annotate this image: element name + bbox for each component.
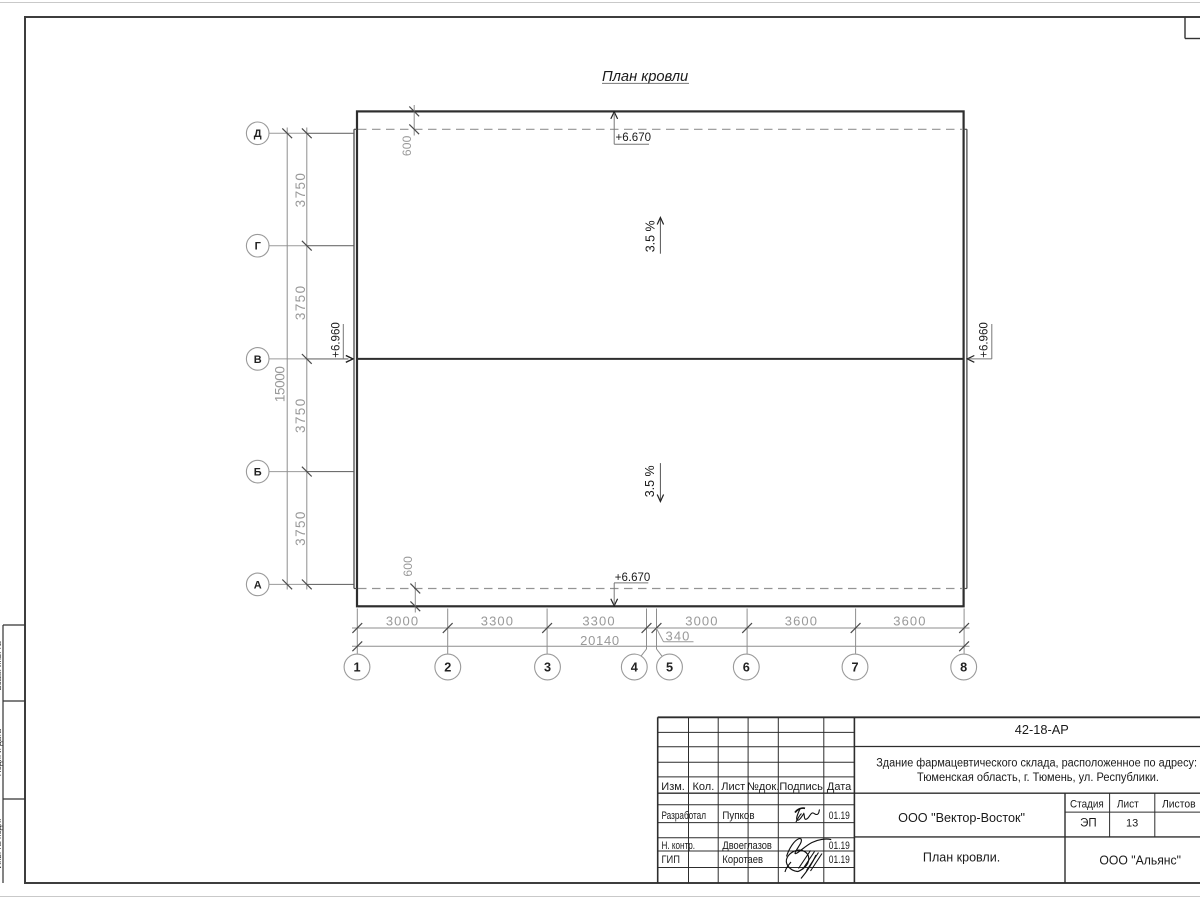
svg-text:13: 13 [1126,818,1138,830]
svg-text:Двоеглазов: Двоеглазов [722,840,772,852]
svg-text:3300: 3300 [481,614,514,629]
svg-text:ЭП: ЭП [1080,818,1097,830]
svg-text:3.5 %: 3.5 % [643,465,657,497]
svg-text:+6.670: +6.670 [615,572,651,584]
svg-text:В: В [254,354,262,366]
svg-text:Инв. № подл.: Инв. № подл. [0,819,3,869]
svg-text:7: 7 [851,660,858,674]
svg-text:Подп. и дата: Подп. и дата [0,728,3,776]
svg-text:01.19: 01.19 [829,854,850,866]
svg-text:01.19: 01.19 [829,810,850,822]
svg-text:Н. контр.: Н. контр. [662,840,696,852]
svg-text:6: 6 [743,660,750,674]
svg-text:3600: 3600 [893,614,926,629]
svg-text:Дата: Дата [827,781,852,793]
svg-text:4: 4 [631,660,638,674]
svg-text:Изм.: Изм. [661,781,685,793]
svg-text:3: 3 [544,660,551,674]
svg-text:3750: 3750 [293,397,308,433]
svg-text:Разработал: Разработал [662,810,707,822]
svg-text:3750: 3750 [293,284,308,320]
svg-text:Лист: Лист [721,781,745,793]
svg-text:Стадия: Стадия [1070,799,1104,811]
svg-text:Б: Б [254,467,262,479]
svg-text:Подпись: Подпись [779,781,823,793]
svg-text:3600: 3600 [785,614,818,629]
svg-text:2: 2 [444,660,451,674]
svg-text:ГИП: ГИП [662,854,681,866]
svg-text:№док.: №док. [747,781,779,793]
svg-text:3750: 3750 [293,172,308,208]
svg-text:А: А [254,579,262,591]
svg-text:ООО "Вектор-Восток": ООО "Вектор-Восток" [898,811,1025,825]
svg-text:Листов: Листов [1162,799,1196,811]
svg-text:Г: Г [255,241,262,253]
svg-text:600: 600 [400,135,414,156]
svg-text:5: 5 [666,660,673,674]
svg-text:Пупков: Пупков [722,810,754,822]
svg-text:600: 600 [401,556,415,577]
svg-text:20140: 20140 [580,633,620,648]
svg-text:Д: Д [254,128,262,140]
svg-text:План кровли.: План кровли. [923,851,1000,865]
svg-text:8: 8 [960,660,967,674]
svg-text:+6.960: +6.960 [331,322,343,358]
svg-text:Кол.: Кол. [693,781,715,793]
svg-text:3000: 3000 [685,614,718,629]
svg-text:+6.670: +6.670 [616,132,652,144]
svg-text:Лист: Лист [1117,799,1139,811]
svg-text:3.5 %: 3.5 % [644,220,658,252]
svg-text:3300: 3300 [582,614,615,629]
svg-text:3750: 3750 [293,510,308,546]
svg-text:42-18-АР: 42-18-АР [1015,723,1069,737]
svg-text:План кровли: План кровли [602,69,688,85]
svg-text:Здание фармацевтического склад: Здание фармацевтического склада, располо… [876,758,1197,770]
svg-text:Взам. инв. №: Взам. инв. № [0,640,3,690]
svg-text:1: 1 [353,660,360,674]
svg-text:+6.960: +6.960 [978,322,990,358]
svg-text:Коротаев: Коротаев [722,854,763,866]
svg-text:3000: 3000 [386,614,419,629]
svg-text:ООО "Альянс": ООО "Альянс" [1099,854,1181,868]
svg-text:01.19: 01.19 [829,840,850,852]
svg-text:15000: 15000 [273,367,288,403]
svg-text:Тюменская область, г. Тюмень,: Тюменская область, г. Тюмень, ул. Респуб… [917,772,1159,784]
